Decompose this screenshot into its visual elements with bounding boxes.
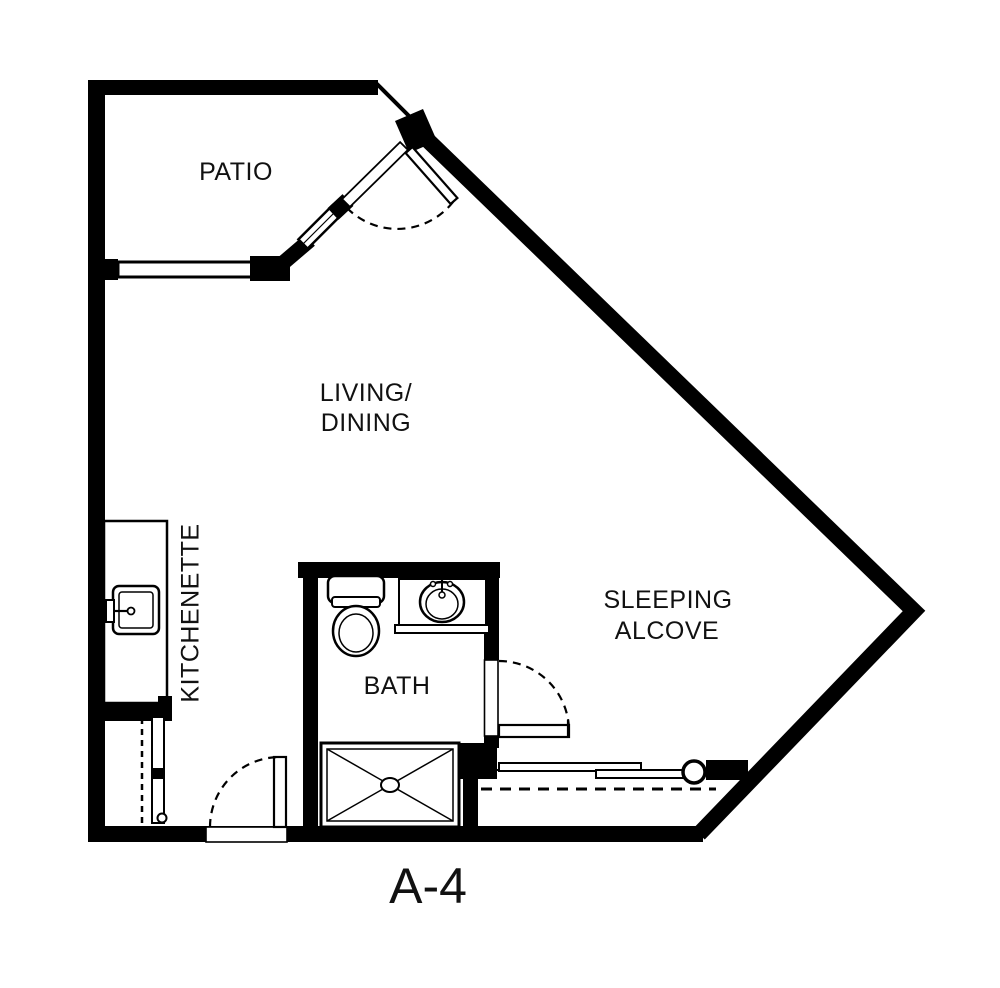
patio-partition-wall: [104, 200, 348, 281]
closet-jamb-block: [460, 743, 497, 779]
patio-door-opening: [342, 142, 408, 207]
plan-title: A-4: [389, 858, 467, 914]
bathroom-sink-icon: [420, 580, 464, 622]
room-label-sleeping-line2: ALCOVE: [615, 617, 719, 645]
room-label-sleeping-line1: SLEEPING: [603, 586, 732, 614]
bath-faucet-drain: [439, 592, 445, 598]
sliding-panel-2: [596, 770, 691, 778]
vanity-front-edge: [395, 625, 489, 633]
floor-plan-page: PATIO LIVING/ DINING KITCHENETTE BATH SL…: [0, 0, 1000, 988]
entry-door: [206, 757, 287, 842]
closet-west-wall: [463, 779, 478, 827]
left-wall: [88, 80, 105, 842]
bath-door-opening: [485, 660, 499, 736]
room-label-bath: BATH: [364, 672, 431, 700]
entry-door-swing-arc: [210, 757, 280, 827]
bath-west-wall: [303, 578, 318, 834]
toilet-icon: [328, 576, 384, 656]
closet-door-panel-tick: [152, 768, 164, 779]
entry-closet: [142, 717, 167, 826]
bath-north-wall: [298, 562, 500, 578]
floor-plan: PATIO LIVING/ DINING KITCHENETTE BATH SL…: [0, 0, 1000, 988]
patio-door-swing-arc: [347, 202, 453, 229]
bath-door-leaf: [499, 725, 569, 737]
alcove-closet-sliding-door: [478, 760, 748, 789]
room-label-kitchenette: KITCHENETTE: [177, 523, 205, 702]
bath-door: [485, 660, 570, 737]
entry-door-leaf: [274, 757, 286, 827]
bath-faucet-left-handle: [431, 582, 436, 587]
shower-drain: [381, 778, 399, 792]
faucet-knob: [128, 608, 135, 615]
room-label-patio: PATIO: [199, 158, 273, 186]
window-end-cap: [104, 259, 118, 280]
room-label-living-line1: LIVING/: [320, 379, 412, 407]
faucet-handle: [106, 600, 114, 622]
bath-faucet-right-handle: [448, 582, 453, 587]
sliding-door-pull: [683, 761, 705, 783]
closet-door-knob: [158, 814, 167, 823]
room-label-living-line2: DINING: [321, 409, 412, 437]
entry-door-threshold: [206, 827, 287, 842]
top-wall: [88, 80, 378, 95]
shower-stall-icon: [321, 743, 459, 827]
patio-window-diagonal-midline: [303, 210, 337, 244]
closet-end-block: [706, 760, 748, 780]
kitchen-sink-icon: [106, 586, 159, 634]
bath-door-swing-arc: [499, 661, 569, 731]
stub-jut: [158, 696, 172, 704]
patio-window-horizontal: [118, 262, 252, 277]
